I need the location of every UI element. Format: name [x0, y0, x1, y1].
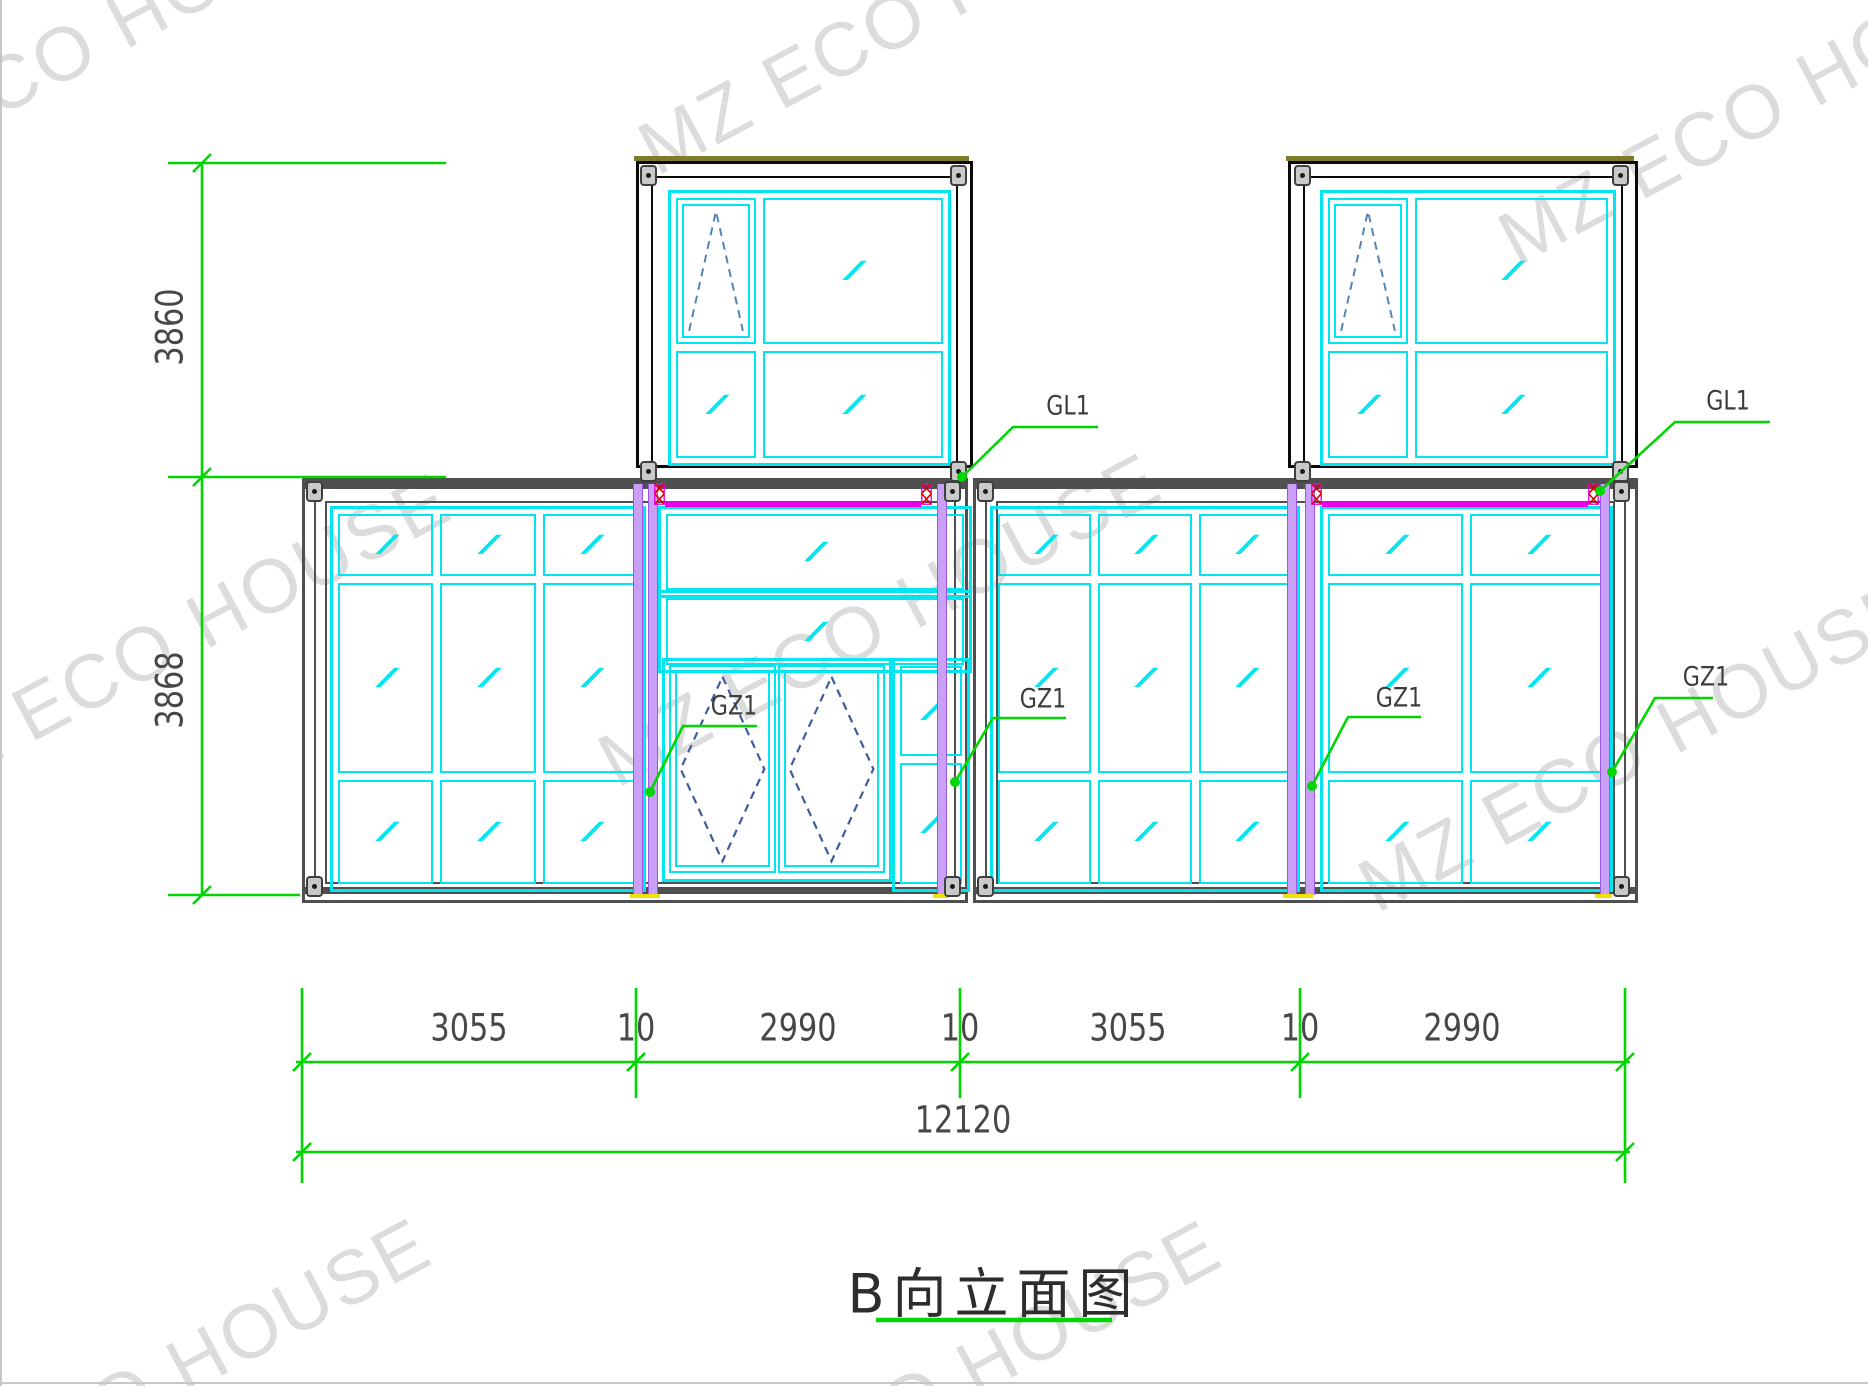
gz1-leader	[955, 718, 1066, 782]
gz1-leader	[1612, 698, 1713, 772]
dim-segment: 10	[1281, 1007, 1320, 1050]
drawing-title: B向立面图	[847, 1250, 1140, 1329]
gz1-label: GZ1	[1376, 683, 1422, 714]
gl1-leader	[962, 427, 1098, 477]
gz1-label: GZ1	[1683, 662, 1729, 693]
leader-dot	[957, 472, 967, 482]
dim-segment: 2990	[1423, 1007, 1500, 1050]
elevation-drawing-sheet: MZ ECO HOUSE MZ ECO HOUSE MZ ECO HOUSE M…	[0, 0, 1868, 1386]
dim-left-upper: 3860	[149, 288, 192, 365]
gz1-leader	[650, 726, 757, 792]
leader-dot	[950, 777, 960, 787]
gz1-label: GZ1	[711, 691, 757, 722]
dimension-overlay	[0, 0, 1868, 1386]
gz1-leader	[1312, 717, 1421, 786]
dim-left-lower: 3868	[149, 651, 192, 728]
gl1-label: GL1	[1046, 391, 1090, 422]
dim-segment: 10	[617, 1007, 656, 1050]
leader-dot	[1307, 781, 1317, 791]
dim-segment: 2990	[759, 1007, 836, 1050]
gz1-label: GZ1	[1020, 684, 1066, 715]
dim-total: 12120	[915, 1099, 1012, 1142]
leader-dot	[1595, 486, 1605, 496]
leader-dot	[645, 787, 655, 797]
leader-dot	[1607, 767, 1617, 777]
gl1-leader	[1600, 422, 1770, 491]
gl1-label: GL1	[1706, 386, 1750, 417]
dim-segment: 10	[941, 1007, 980, 1050]
dim-segment: 3055	[1089, 1007, 1166, 1050]
dim-segment: 3055	[430, 1007, 507, 1050]
